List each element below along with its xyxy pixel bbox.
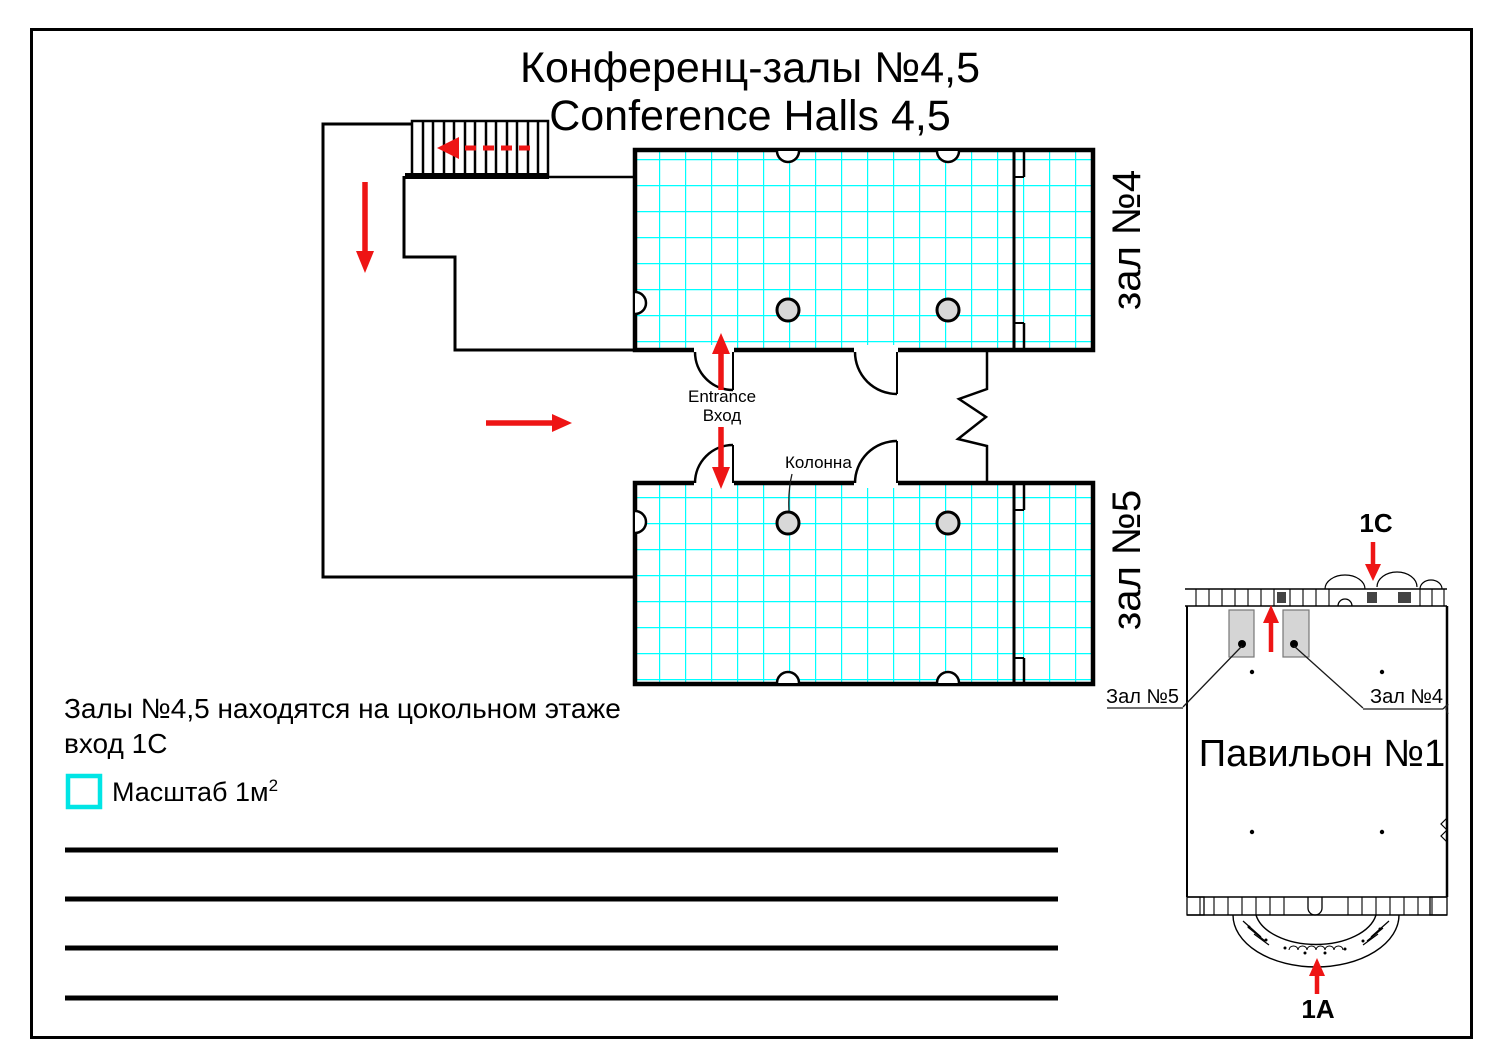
minimap-entrance-1c-label: 1С <box>1359 510 1392 537</box>
hall4-wall-column-notch <box>777 151 799 162</box>
minimap-hall5-marker <box>1229 610 1254 657</box>
minimap-top-band <box>1185 572 1447 606</box>
minimap-entrance-1a-label: 1А <box>1301 996 1334 1023</box>
minimap-bush <box>1377 572 1417 587</box>
minimap-stair-block <box>1398 592 1411 603</box>
column-label: Колонна <box>785 454 852 472</box>
hall-5 <box>635 441 1093 684</box>
minimap-hall5-label: Зал №5 <box>1106 687 1179 708</box>
minimap-pavilion-label: Павильон №1 <box>1199 735 1445 775</box>
minimap-bottom-band <box>1187 897 1447 915</box>
bottom-rule-lines <box>65 850 1058 998</box>
entrance-label-ru: Вход <box>703 407 741 425</box>
hall5-wall-column-notch <box>777 672 799 683</box>
page-title-en: Conference Halls 4,5 <box>0 94 1500 139</box>
floor-plan-page: Конференц-залы №4,5 Conference Halls 4,5… <box>0 0 1500 1060</box>
hall5-door-arc-1 <box>695 445 733 483</box>
hall4-column <box>937 299 959 321</box>
hall5-side-label: зал №5 <box>1106 490 1148 630</box>
hall4-wall-column-notch <box>937 151 959 162</box>
hall4-door-arc-1 <box>695 352 733 390</box>
minimap-bush <box>1325 575 1365 589</box>
hall4-door-gap-2 <box>854 345 898 355</box>
hall5-door-gap-2 <box>854 478 898 488</box>
scale-superscript: 2 <box>269 776 278 795</box>
hall-4 <box>635 150 1093 394</box>
hall4-column <box>777 299 799 321</box>
minimap-stair-block <box>1277 592 1286 603</box>
corridor-walls <box>323 124 636 577</box>
hall5-column <box>937 512 959 534</box>
minimap-hall4-label: Зал №4 <box>1370 687 1443 708</box>
hall5-wall-column-notch <box>937 672 959 683</box>
hall5-door-arc-2 <box>855 441 897 483</box>
minimap-bush <box>1420 580 1442 589</box>
minimap-stair-block <box>1367 592 1377 603</box>
note-location-line1: Залы №4,5 находятся на цокольном этаже <box>64 694 621 723</box>
minimap-arch <box>1338 599 1352 606</box>
hall5-column <box>777 512 799 534</box>
floor-plan-drawing <box>0 0 1500 1060</box>
hall4-side-label: зал №4 <box>1106 170 1148 310</box>
minimap-entry-detail <box>1308 897 1322 915</box>
hall5-wall-column-notch <box>635 511 646 533</box>
hall4-door-arc-2 <box>855 352 897 394</box>
minimap-entrance-ring <box>1233 915 1399 967</box>
stairs-arrow-head <box>437 137 459 159</box>
minimap-scallops <box>1289 946 1343 950</box>
wall-break-symbol <box>958 352 987 481</box>
minimap-hall4-marker <box>1283 610 1309 657</box>
scale-legend-swatch <box>68 776 100 807</box>
hall4-wall-column-notch <box>635 292 646 314</box>
note-location-line2: вход 1С <box>64 729 167 758</box>
entrance-label-en: Entrance <box>688 388 756 406</box>
scale-legend-label: Масштаб 1м2 <box>112 777 278 806</box>
hall5-door-gap-1 <box>694 478 734 488</box>
page-title-ru: Конференц-залы №4,5 <box>0 46 1500 91</box>
